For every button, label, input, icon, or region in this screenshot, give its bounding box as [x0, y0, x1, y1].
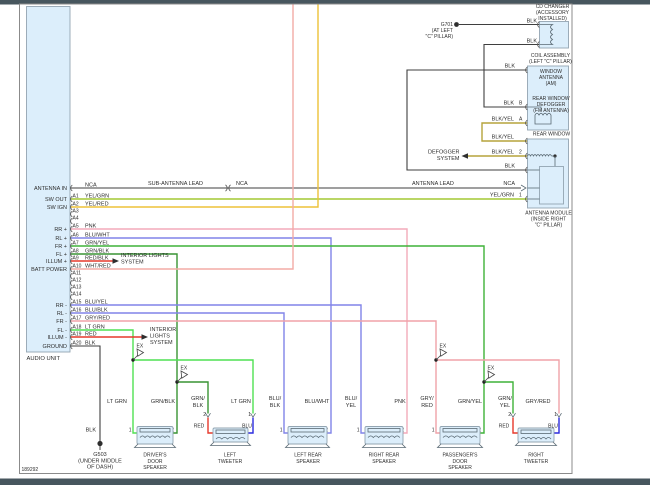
speaker-symbol	[137, 427, 173, 445]
pin-number-label: A20	[73, 341, 82, 347]
wire-color-label: BLU/WHT	[305, 399, 330, 405]
rear-window-label: REAR WINDOW	[533, 132, 571, 138]
coil-assembly-label: (LEFT "C" PILLAR)	[529, 59, 572, 65]
speaker-pin-number: 1	[357, 428, 360, 434]
speaker-base	[286, 444, 330, 448]
interior-lights-system-label: INTERIOR LIGHTS	[121, 253, 169, 259]
audio-unit-label: AUDIO UNIT	[27, 356, 61, 362]
pin-connector	[557, 413, 562, 417]
wire-gry-red-branch	[436, 360, 559, 414]
wire-blu-blk	[70, 313, 288, 433]
wire-color-label: GRN/	[191, 396, 205, 402]
pin-function-label: FL -	[57, 328, 67, 334]
pin-number-label: 2	[519, 150, 522, 156]
pin-number-label: A17	[73, 316, 82, 322]
wire-color-label: YEL/GRN	[85, 194, 109, 200]
splice-triangle-symbol	[181, 371, 188, 378]
wire-color-label: LT GRN	[85, 325, 105, 331]
pin-connector	[206, 413, 211, 417]
pin-function-label: FL +	[56, 252, 67, 258]
pin-function-label: RL +	[55, 236, 67, 242]
splice-ex-label: EX	[488, 366, 495, 372]
defogger-system-label: DEFOGGER	[428, 150, 460, 156]
wire-color-label: PNK	[394, 399, 406, 405]
wire-color-label: YEL	[346, 403, 356, 409]
speaker-base	[516, 442, 557, 446]
pin-number-label: A8	[73, 249, 79, 255]
pin-letter-label: B	[519, 101, 523, 107]
pin-number-label: A19	[73, 332, 82, 338]
speaker-base	[211, 442, 251, 446]
wire-color-label: BLK	[86, 428, 97, 434]
wire-color-label: GRN/YEL	[458, 399, 482, 405]
wire-color-label: GRN/	[498, 396, 512, 402]
pin-function-label: FR -	[56, 319, 67, 325]
coax-pin-symbol	[521, 185, 526, 191]
splice-triangle-symbol	[488, 371, 495, 378]
speaker-pin-number: 2	[203, 412, 206, 418]
speaker-symbol	[288, 427, 327, 445]
pin-function-label: ILLUM +	[46, 259, 67, 265]
speaker-name-label: RIGHT REAR	[369, 453, 400, 459]
wire-yel-red	[70, 5, 318, 208]
antenna-lead-label: ANTENNA LEAD	[412, 181, 454, 187]
pin-function-label: RL -	[57, 311, 67, 317]
audio-unit-box	[27, 7, 71, 353]
pin-function-label: RR +	[54, 227, 67, 233]
wire-color-label: GRY/	[420, 396, 434, 402]
pin-number-label: A11	[73, 271, 82, 277]
g701-location-label: "C" PILLAR)	[426, 34, 454, 40]
speaker-name-label: SPEAKER	[296, 459, 320, 465]
wire-color-label: BLK/YEL	[492, 135, 514, 141]
splice-ex-label: EX	[440, 344, 447, 350]
pin-function-label: RR -	[56, 303, 67, 309]
pin-number-label: A14	[73, 292, 82, 298]
wire-color-label: BLU/BLK	[85, 308, 108, 314]
wire-color-label: LT GRN	[107, 399, 127, 405]
wire-color-label: GRY/RED	[85, 316, 110, 322]
wire-color-label: RED	[85, 332, 97, 338]
wire-color-label: BLK/YEL	[492, 117, 514, 123]
pin-connector	[251, 413, 256, 417]
wire-color-label: BLK	[504, 101, 515, 107]
pin-number-label: A16	[73, 308, 82, 314]
wire-color-label: BLU/	[269, 396, 282, 402]
wire-color-label: PNK	[85, 224, 97, 230]
pin-number-label: A5	[73, 224, 79, 230]
wire-color-label: RED	[194, 424, 205, 430]
speaker-pin-number: 1	[432, 428, 435, 434]
audio-system-wiring-diagram: SUB-ANTENNA LEAD NCA ANTENNA LEAD NCA IN…	[0, 0, 650, 485]
diagram-border	[20, 4, 573, 474]
speaker-name-label: DRIVER'S	[143, 453, 167, 459]
pin-number-label: A6	[73, 233, 79, 239]
wiring-diagram-page: SUB-ANTENNA LEAD NCA ANTENNA LEAD NCA IN…	[0, 0, 650, 485]
cd-changer-box	[540, 22, 569, 49]
wire-color-label: BLU/WHT	[85, 233, 110, 239]
sub-antenna-lead-label: SUB-ANTENNA LEAD	[148, 181, 203, 187]
speaker-name-label: SPEAKER	[448, 465, 472, 471]
wire-color-label: BLK	[193, 403, 204, 409]
pin-function-label: SW OUT	[45, 197, 68, 203]
nca-label: NCA	[236, 181, 248, 187]
wire-color-label: GRN/BLK	[85, 249, 109, 255]
diagram-number: 189292	[22, 467, 39, 473]
speaker-pin-number: 1	[248, 412, 251, 418]
wire-color-label: BLK	[505, 64, 516, 70]
module-inner-box	[540, 167, 564, 205]
speaker-base	[438, 444, 483, 448]
wire-gry-red	[70, 321, 440, 433]
nca-label: NCA	[503, 181, 515, 187]
pin-number-label: A3	[73, 209, 79, 215]
wire-blu-yel	[70, 305, 365, 433]
wire-color-label: LT GRN	[231, 399, 251, 405]
speaker-name-label: TWEETER	[218, 459, 243, 465]
speaker-symbol	[440, 427, 480, 445]
interior-lights-arrow	[113, 258, 120, 264]
pin-function-label: BATT POWER	[31, 267, 67, 273]
pin-number-label: 1	[519, 193, 522, 199]
pin-number-label: A7	[73, 241, 79, 247]
rear-defogger-label: (FM ANTENNA)	[533, 108, 569, 114]
pin-connector	[511, 413, 516, 417]
wire-color-label: BLU/	[345, 396, 358, 402]
speaker-name-label: TWEETER	[524, 459, 549, 465]
wire-color-label: BLK/YEL	[492, 150, 514, 156]
pin-number-label: A9	[73, 256, 79, 262]
splice-ex-label: EX	[181, 366, 188, 372]
speaker-name-label: PASSENGER'S	[442, 453, 478, 459]
tweeter-red-lead	[513, 418, 518, 434]
wire-color-label: GRY/RED	[526, 399, 551, 405]
wire-color-label: BLU/YEL	[85, 300, 108, 306]
pin-number-label: A4	[73, 216, 79, 222]
speaker-base	[363, 444, 406, 448]
pin-number-label: A15	[73, 300, 82, 306]
wire-color-label: WHT/RED	[85, 264, 111, 270]
wire-color-label: GRN/BLK	[151, 399, 175, 405]
wire-color-label: YEL	[500, 403, 510, 409]
wire-color-label: NCA	[85, 183, 97, 189]
wire-color-label: YEL/GRN	[490, 193, 514, 199]
wire-color-label: RED/BLK	[85, 256, 109, 262]
pin-function-label: SW IGN	[47, 205, 67, 211]
speaker-name-label: DOOR	[453, 459, 468, 465]
pin-number-label: A12	[73, 278, 82, 284]
pin-number-label: A10	[73, 264, 82, 270]
antenna-module-label: "C" PILLAR)	[535, 223, 563, 229]
window-antenna-label: (AM)	[546, 81, 557, 87]
pin-function-label: GROUND	[43, 344, 67, 350]
interior-lights-system-label: SYSTEM	[150, 340, 173, 346]
defogger-system-label: SYSTEM	[437, 156, 460, 162]
wire-color-label: YEL/RED	[85, 202, 109, 208]
tweeter-red-lead	[208, 418, 213, 434]
pin-number-label: A18	[73, 325, 82, 331]
splice-triangle-symbol	[440, 349, 447, 356]
wire-color-label: BLK	[527, 19, 538, 25]
cd-changer-label: INSTALLED)	[538, 16, 567, 22]
speaker-name-label: SPEAKER	[143, 465, 167, 471]
wire-color-label: BLK	[505, 164, 516, 170]
interior-lights-arrow	[142, 334, 149, 340]
pin-number-label: A1	[73, 194, 79, 200]
splice-ex-label: EX	[137, 344, 144, 350]
speaker-name-label: LEFT REAR	[294, 453, 322, 459]
speaker-name-label: LEFT	[224, 453, 236, 459]
speaker-pin-number: 1	[280, 428, 283, 434]
speaker-name-label: RIGHT	[528, 453, 544, 459]
pin-number-label: A13	[73, 285, 82, 291]
pin-function-label: ILLUM -	[47, 335, 67, 341]
window-chrome-bottom-bar	[0, 479, 650, 485]
wire-color-label: BLK	[85, 341, 96, 347]
pin-function-label: FR +	[55, 244, 67, 250]
pin-letter-label: A	[519, 117, 523, 123]
g701-ground-symbol	[454, 22, 459, 27]
wire-color-label: GRN/YEL	[85, 241, 109, 247]
wire-color-label: BLK	[527, 39, 538, 45]
wire-color-label: BLK	[270, 403, 281, 409]
speaker-pin-number: 1	[129, 428, 132, 434]
speaker-name-label: DOOR	[148, 459, 163, 465]
interior-lights-system-label: LIGHTS	[150, 334, 170, 340]
interior-lights-system-label: INTERIOR	[150, 327, 176, 333]
pin-function-label: ANTENNA IN	[34, 186, 67, 192]
speaker-pin-number: 2	[508, 412, 511, 418]
g503-label: G503	[93, 452, 106, 458]
g503-ground-symbol	[97, 441, 102, 446]
speaker-pin-number: 1	[554, 412, 557, 418]
wire-color-label: RED	[499, 424, 510, 430]
wire-color-label: RED	[421, 403, 433, 409]
defogger-system-arrow	[462, 153, 469, 159]
g503-location-label: OF DASH)	[87, 465, 113, 471]
speaker-symbol	[365, 427, 403, 445]
splice-triangle-symbol	[137, 349, 144, 356]
interior-lights-system-label: SYSTEM	[121, 260, 144, 266]
speaker-base	[135, 444, 176, 448]
pin-number-label: A2	[73, 202, 79, 208]
speaker-name-label: SPEAKER	[372, 459, 396, 465]
